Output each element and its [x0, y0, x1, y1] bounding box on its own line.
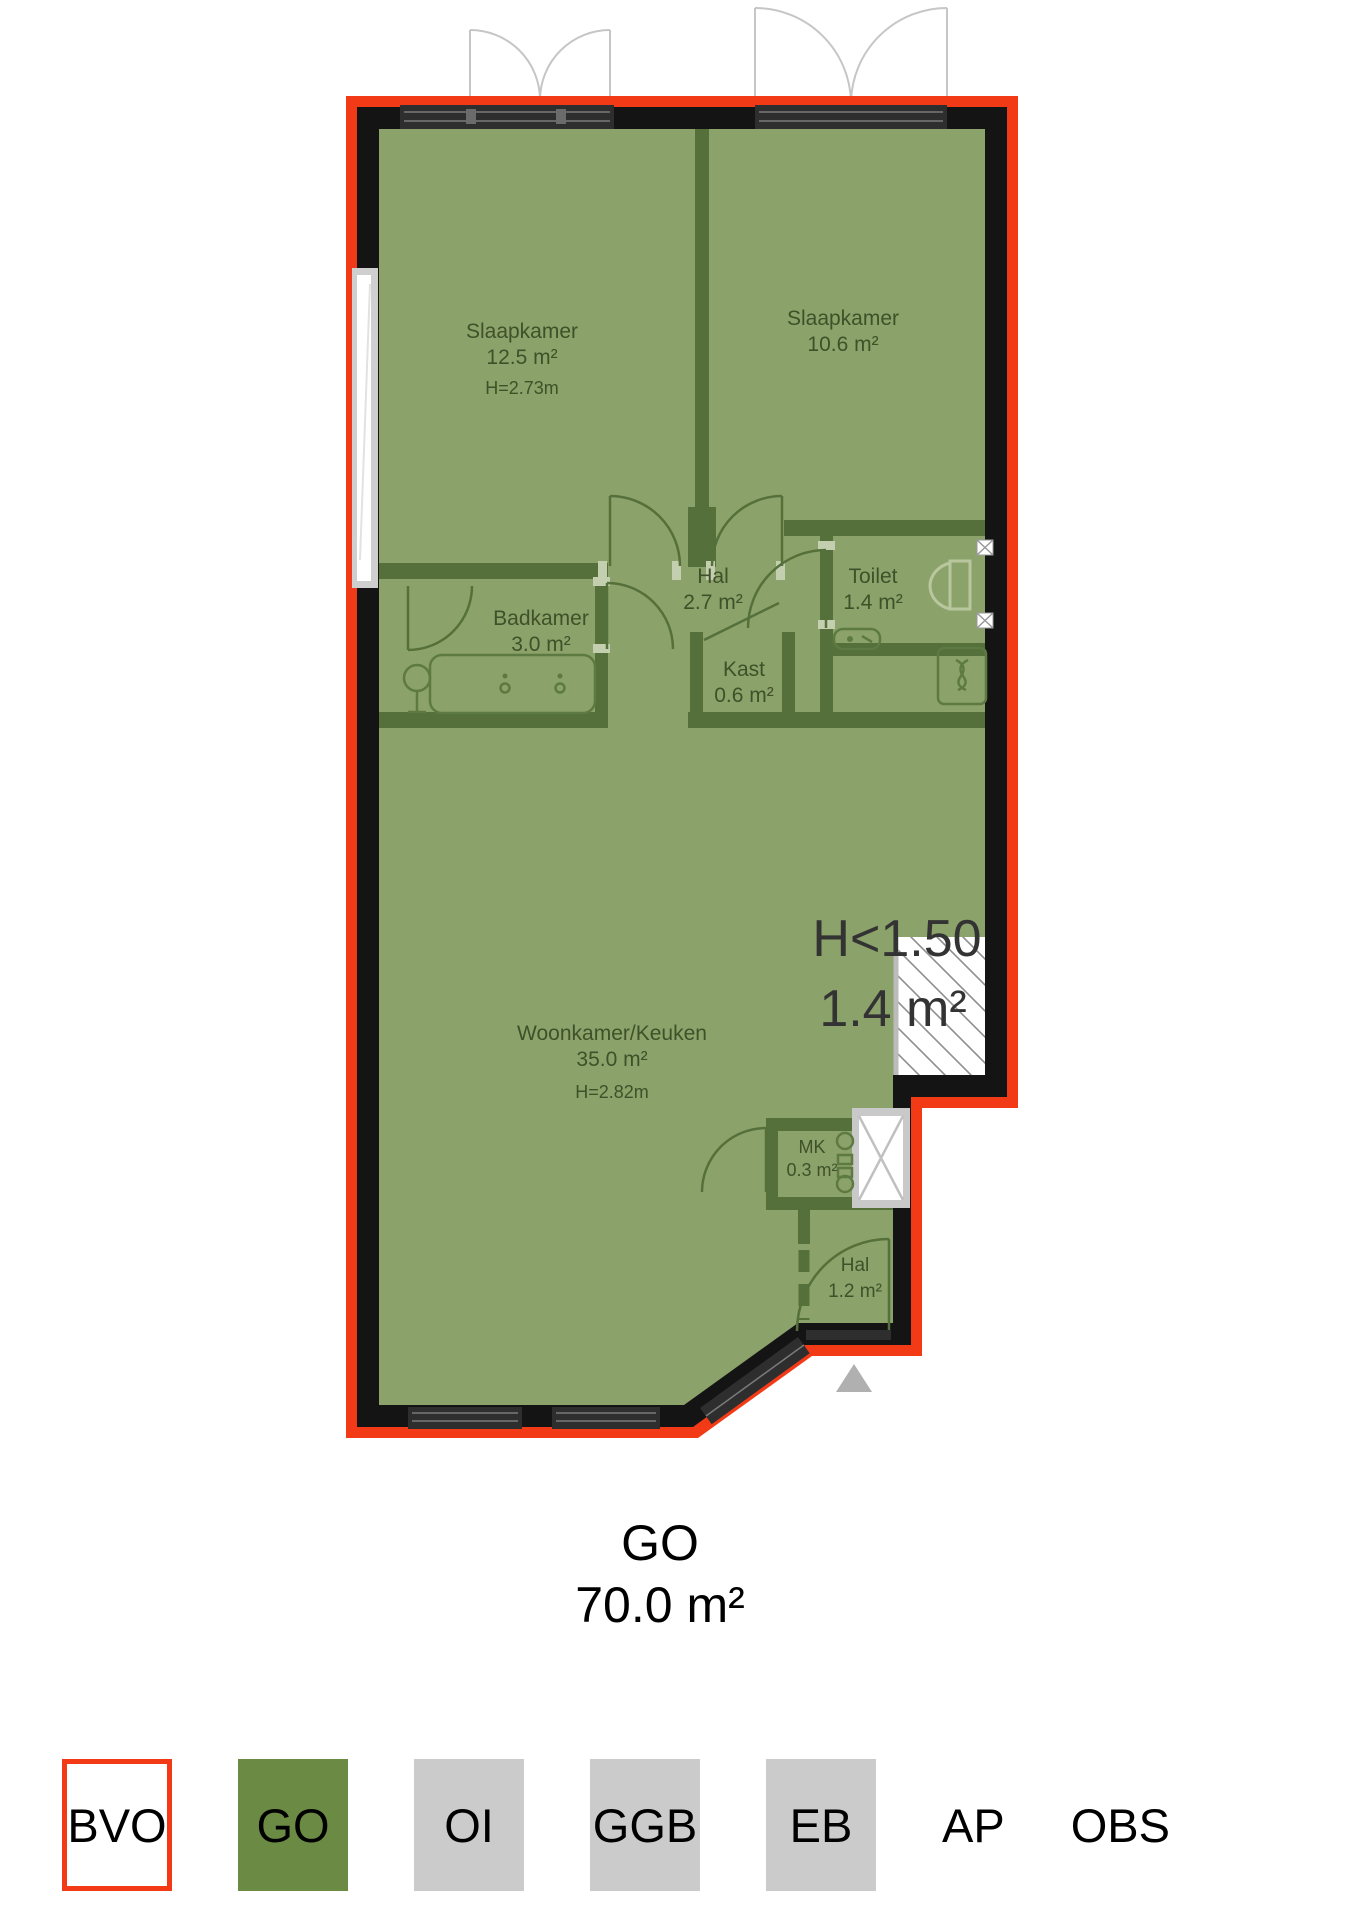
room-label-mk: MK: [799, 1137, 826, 1157]
legend-item-obs: OBS: [1071, 1798, 1170, 1853]
room-label-kast: Kast: [723, 658, 765, 681]
room-area-woonkamer: 35.0 m²: [576, 1048, 647, 1071]
low-headroom-line2: 1.4 m²: [819, 980, 966, 1038]
room-label-toilet: Toilet: [848, 565, 897, 588]
summary-label: GO: [410, 1512, 910, 1574]
legend-label-oi: OI: [444, 1798, 494, 1853]
room-label-hal: Hal: [697, 565, 729, 588]
legend-item-oi: OI: [414, 1759, 524, 1891]
room-height-slaapkamer-links: H=2.73m: [485, 378, 559, 398]
legend: BVO GO OI GGB EB AP OBS: [62, 1758, 1170, 1892]
room-area-slaapkamer-rechts: 10.6 m²: [807, 333, 878, 356]
window-handle: [466, 109, 476, 124]
legend-label-obs: OBS: [1071, 1799, 1170, 1852]
legend-label-eb: EB: [790, 1798, 853, 1853]
legend-label-bvo: BVO: [67, 1798, 166, 1853]
door-swing-arc: [755, 8, 851, 102]
legend-item-bvo: BVO: [62, 1759, 172, 1891]
room-area-hal-entree: 1.2 m²: [828, 1281, 882, 1302]
wall-mk-top: [766, 1118, 858, 1131]
wall-kast-right: [782, 632, 795, 712]
room-label-slaapkamer-links: Slaapkamer: [466, 320, 578, 343]
floorplan-page: Slaapkamer 12.5 m² H=2.73m Slaapkamer 10…: [0, 0, 1358, 1920]
legend-label-go: GO: [256, 1798, 329, 1853]
room-label-hal-entree: Hal: [841, 1255, 870, 1276]
door-swing-arc: [540, 30, 610, 100]
wall-bedroom2-bottom: [784, 520, 985, 536]
entrance-door-slab: [806, 1330, 891, 1340]
room-area-slaapkamer-links: 12.5 m²: [486, 346, 557, 369]
window-bottom-1: [408, 1407, 522, 1429]
wall-hal-left-stub: [798, 1210, 810, 1244]
legend-item-eb: EB: [766, 1759, 876, 1891]
room-area-hal: 2.7 m²: [683, 591, 743, 614]
window-top-left: [400, 105, 614, 129]
legend-label-ap: AP: [942, 1799, 1005, 1852]
wall-bedroom-divider: [695, 129, 709, 507]
window-top-right: [755, 105, 947, 129]
room-area-badkamer: 3.0 m²: [511, 633, 571, 656]
hand-basin-drain: [847, 636, 853, 642]
door-swing-arc: [470, 30, 540, 100]
wall-kast-left: [690, 632, 703, 712]
room-label-slaapkamer-rechts: Slaapkamer: [787, 307, 899, 330]
balcony-door-arcs: [470, 8, 947, 102]
bathtub-dot: [558, 674, 563, 679]
room-area-kast: 0.6 m²: [714, 684, 774, 707]
plan-summary: GO 70.0 m²: [410, 1512, 910, 1636]
door-frame: [818, 541, 835, 550]
entrance-arrow-icon: [836, 1364, 872, 1392]
wall-livingroom-top-right: [688, 712, 985, 728]
legend-label-ggb: GGB: [593, 1798, 697, 1853]
room-area-mk: 0.3 m²: [786, 1160, 837, 1180]
bathtub-dot: [503, 674, 508, 679]
legend-item-ggb: GGB: [590, 1759, 700, 1891]
window-handle: [556, 109, 566, 124]
wall-livingroom-top-left: [379, 712, 608, 728]
low-headroom-line1: H<1.50: [812, 910, 981, 968]
legend-item-ap: AP: [942, 1798, 1005, 1853]
wall-bedroom1-bottom: [379, 563, 608, 579]
wall-lobby-left: [820, 643, 833, 728]
summary-area: 70.0 m²: [410, 1574, 910, 1636]
wall-mk-left: [766, 1118, 778, 1210]
room-label-woonkamer: Woonkamer/Keuken: [517, 1022, 707, 1045]
room-height-woonkamer: H=2.82m: [575, 1082, 649, 1102]
window-bottom-2: [552, 1407, 660, 1429]
room-area-toilet: 1.4 m²: [843, 591, 903, 614]
legend-item-go: GO: [238, 1759, 348, 1891]
room-label-badkamer: Badkamer: [493, 607, 589, 630]
door-swing-arc: [851, 8, 947, 102]
